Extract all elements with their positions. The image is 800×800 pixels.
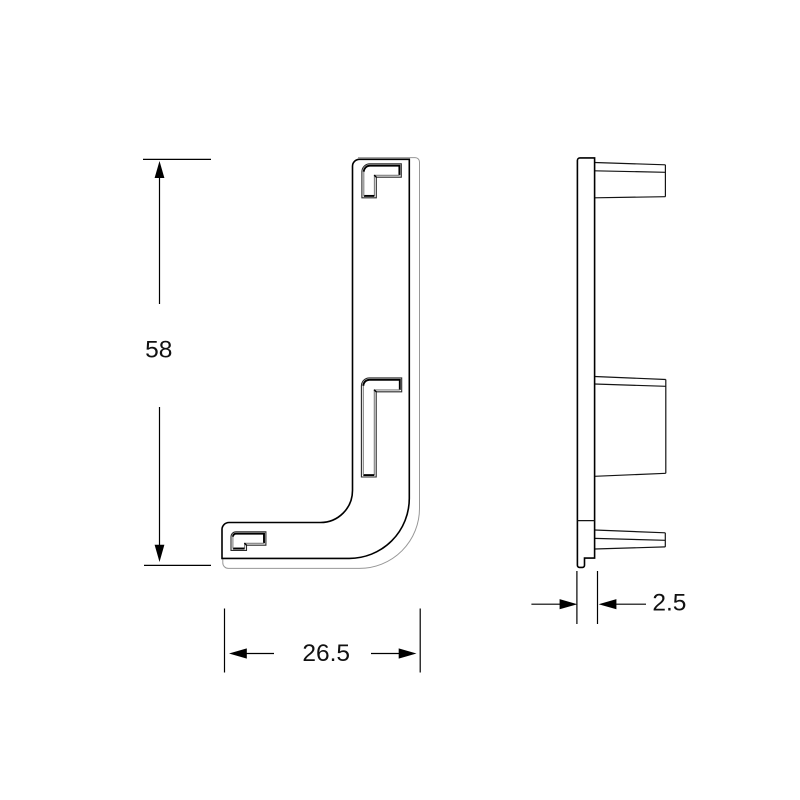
svg-text:58: 58 [145,337,172,364]
svg-text:2.5: 2.5 [652,589,686,616]
svg-text:26.5: 26.5 [302,640,350,667]
